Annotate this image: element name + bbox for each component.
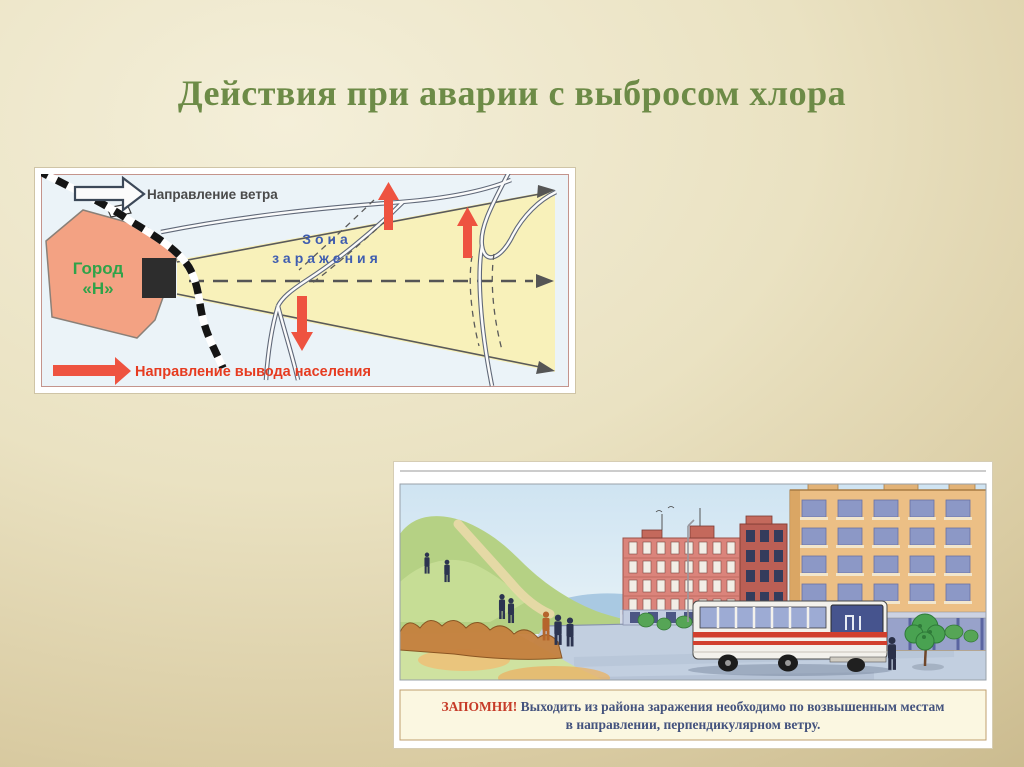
evacuation-drawing: ЗАПОМНИ! Выходить из района заражения не… [394, 462, 992, 748]
bus-rear-window [831, 605, 883, 636]
svg-text:Город: Город [73, 259, 124, 278]
caption-line-2: в направлении, перпендикулярном ветру. [566, 717, 821, 732]
chemical-plant-marker [142, 258, 176, 298]
svg-text:Зона: Зона [302, 231, 352, 247]
svg-text:заражения: заражения [272, 250, 382, 266]
map-figure: Направление ветра Город «Н» Зона заражен… [35, 168, 575, 393]
scene [400, 476, 986, 690]
evacuation-direction-label: Направление вывода населения [135, 364, 371, 380]
wind-direction-label: Направление ветра [147, 187, 278, 202]
caption-line-1: ЗАПОМНИ! Выходить из района заражения не… [442, 699, 945, 714]
svg-text:«Н»: «Н» [82, 279, 113, 298]
slide-title: Действия при аварии с выбросом хлора [0, 72, 1024, 114]
caption-box: ЗАПОМНИ! Выходить из района заражения не… [400, 690, 986, 740]
bus [688, 601, 892, 676]
caption-warning-word: ЗАПОМНИ! [442, 699, 518, 714]
evacuation-illustration: ЗАПОМНИ! Выходить из района заражения не… [394, 462, 992, 748]
presentation-slide: Действия при аварии с выбросом хлора [0, 0, 1024, 767]
contamination-map: Направление ветра Город «Н» Зона заражен… [41, 174, 569, 387]
